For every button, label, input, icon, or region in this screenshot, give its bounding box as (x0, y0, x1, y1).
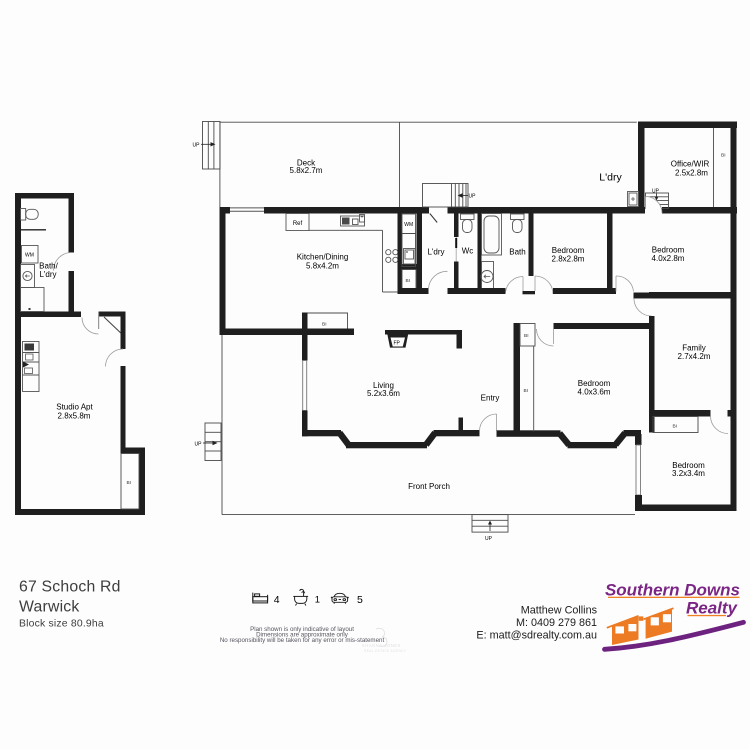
svg-text:Bath: Bath (509, 248, 525, 257)
svg-text:Realty: Realty (686, 599, 739, 618)
svg-text:FP: FP (394, 341, 401, 347)
svg-text:2.8x2.8m: 2.8x2.8m (552, 255, 585, 264)
svg-text:BI: BI (524, 333, 529, 339)
svg-text:2.7x4.2m: 2.7x4.2m (678, 352, 711, 361)
svg-text:5.8x2.7m: 5.8x2.7m (290, 166, 323, 175)
svg-text:L'dry: L'dry (39, 270, 56, 279)
svg-text:UP: UP (485, 536, 493, 542)
svg-text:Matthew Collins: Matthew Collins (521, 605, 598, 617)
svg-text:L'dry: L'dry (427, 248, 444, 257)
svg-text:Studio Apt: Studio Apt (56, 403, 93, 412)
svg-text:Wc: Wc (462, 247, 474, 256)
svg-text:REAL ESTATE AGENCY: REAL ESTATE AGENCY (364, 649, 407, 653)
svg-text:BI: BI (127, 480, 132, 486)
svg-text:2.5x2.8m: 2.5x2.8m (675, 169, 708, 178)
svg-text:Block size 80.9ha: Block size 80.9ha (19, 619, 104, 630)
svg-text:M: 0409 279 861: M: 0409 279 861 (516, 617, 597, 629)
svg-text:Ref: Ref (293, 221, 303, 227)
svg-text:1: 1 (315, 595, 320, 606)
svg-text:BI: BI (406, 278, 411, 284)
svg-text:BI: BI (721, 153, 726, 159)
svg-text:Warwick: Warwick (19, 599, 79, 616)
svg-text:KHANNA·JONES: KHANNA·JONES (362, 643, 401, 648)
svg-text:E: matt@sdrealty.com.au: E: matt@sdrealty.com.au (476, 630, 597, 642)
svg-text:Front Porch: Front Porch (408, 482, 450, 491)
svg-text:L'dry: L'dry (599, 172, 622, 184)
svg-text:5.2x3.6m: 5.2x3.6m (367, 389, 400, 398)
svg-text:UP: UP (469, 194, 477, 200)
svg-text:BI: BI (524, 388, 529, 394)
svg-text:BI: BI (673, 424, 678, 430)
svg-text:UP: UP (193, 143, 201, 149)
svg-text:Southern Downs: Southern Downs (605, 581, 740, 600)
svg-text:UP: UP (195, 441, 203, 447)
svg-text:WM: WM (404, 222, 413, 228)
svg-text:2.8x5.8m: 2.8x5.8m (58, 412, 91, 421)
svg-text:4.0x3.6m: 4.0x3.6m (578, 388, 611, 397)
svg-text:Entry: Entry (481, 394, 500, 403)
svg-text:WM: WM (25, 253, 34, 259)
svg-text:UP: UP (652, 189, 660, 195)
svg-text:Office/WIR: Office/WIR (671, 160, 710, 169)
svg-text:4: 4 (274, 594, 280, 606)
svg-text:Kitchen/Dining: Kitchen/Dining (297, 253, 349, 262)
svg-text:5.8x4.2m: 5.8x4.2m (306, 262, 339, 271)
svg-text:67 Schoch Rd: 67 Schoch Rd (19, 579, 121, 596)
svg-text:5: 5 (357, 594, 363, 606)
svg-text:BI: BI (322, 322, 327, 328)
svg-text:3.2x3.4m: 3.2x3.4m (672, 469, 705, 478)
svg-text:4.0x2.8m: 4.0x2.8m (652, 254, 685, 263)
svg-text:No responsibility will be take: No responsibility will be taken for any … (220, 637, 385, 644)
